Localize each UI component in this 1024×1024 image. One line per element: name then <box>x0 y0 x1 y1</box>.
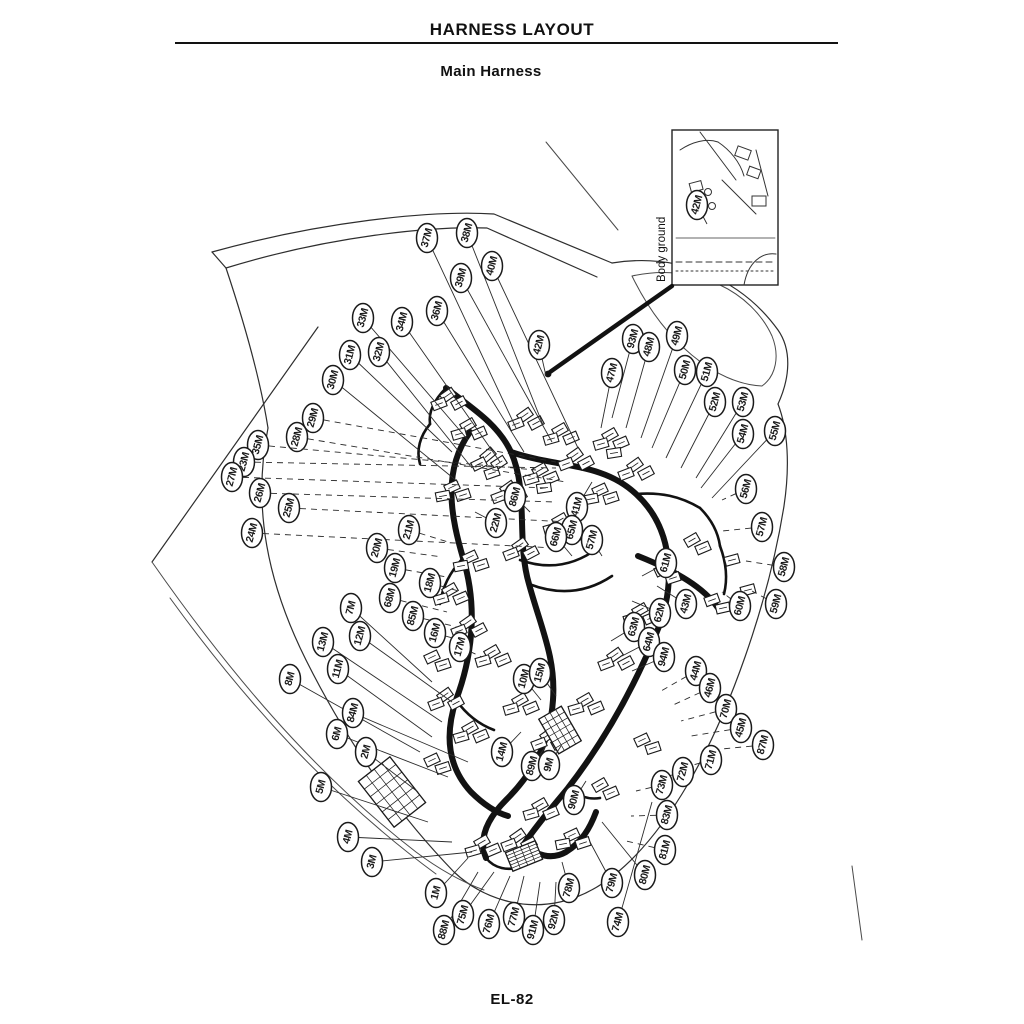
callout-50M: 50M <box>652 356 696 449</box>
connector-cluster <box>424 650 451 671</box>
callout-14M: 14M <box>492 732 522 767</box>
connector-cluster <box>424 753 451 774</box>
connector-cluster <box>724 554 740 566</box>
callout-57M: 57M <box>582 526 603 557</box>
callout-36M: 36M <box>427 297 525 453</box>
callout-59M: 59M <box>752 590 787 619</box>
callout-31M: 31M <box>340 341 453 453</box>
callout-73M: 73M <box>636 771 673 800</box>
connector-cluster <box>583 483 619 505</box>
connector-cluster <box>684 533 712 555</box>
callout-91M: 91M <box>523 882 544 945</box>
harness-diagram: Body ground 37M38M39M40M36M34M33M32M31M3… <box>0 0 1024 1024</box>
callout-76M: 76M <box>479 876 511 939</box>
connector-cluster <box>634 733 661 754</box>
callout-52M: 52M <box>681 388 726 469</box>
callout-83M: 83M <box>631 801 678 830</box>
diagram-callouts: 37M38M39M40M36M34M33M32M31M30M29M28M35M2… <box>222 191 795 945</box>
inset-caption: Body ground <box>656 217 668 282</box>
callout-17M: 17M <box>450 633 483 662</box>
callout-79M: 79M <box>590 842 623 898</box>
connector-cluster <box>593 428 629 459</box>
page-number: EL-82 <box>0 991 1024 1008</box>
callout-58M: 58M <box>746 553 795 582</box>
connector-cluster <box>568 693 604 716</box>
callout-22M: 22M <box>475 509 507 538</box>
callout-86M: 86M <box>505 483 531 513</box>
callout-78M: 78M <box>559 862 580 903</box>
connector-cluster <box>503 693 539 716</box>
body-ground-inset: Body ground <box>545 130 778 377</box>
connector-cluster <box>543 423 579 446</box>
callout-18M: 18M <box>420 569 463 598</box>
callout-21M: 21M <box>399 516 449 545</box>
callout-56M: 56M <box>722 475 757 504</box>
callout-42M: 42M <box>529 331 550 377</box>
callout-34M: 34M <box>392 308 501 463</box>
callout-57M: 57M <box>722 513 773 542</box>
connector-cluster <box>618 457 654 480</box>
connector-cluster <box>598 647 634 670</box>
connector-cluster <box>592 778 620 800</box>
manual-page: HARNESS LAYOUT Main Harness <box>0 0 1024 1024</box>
callout-28M: 28M <box>287 423 567 483</box>
